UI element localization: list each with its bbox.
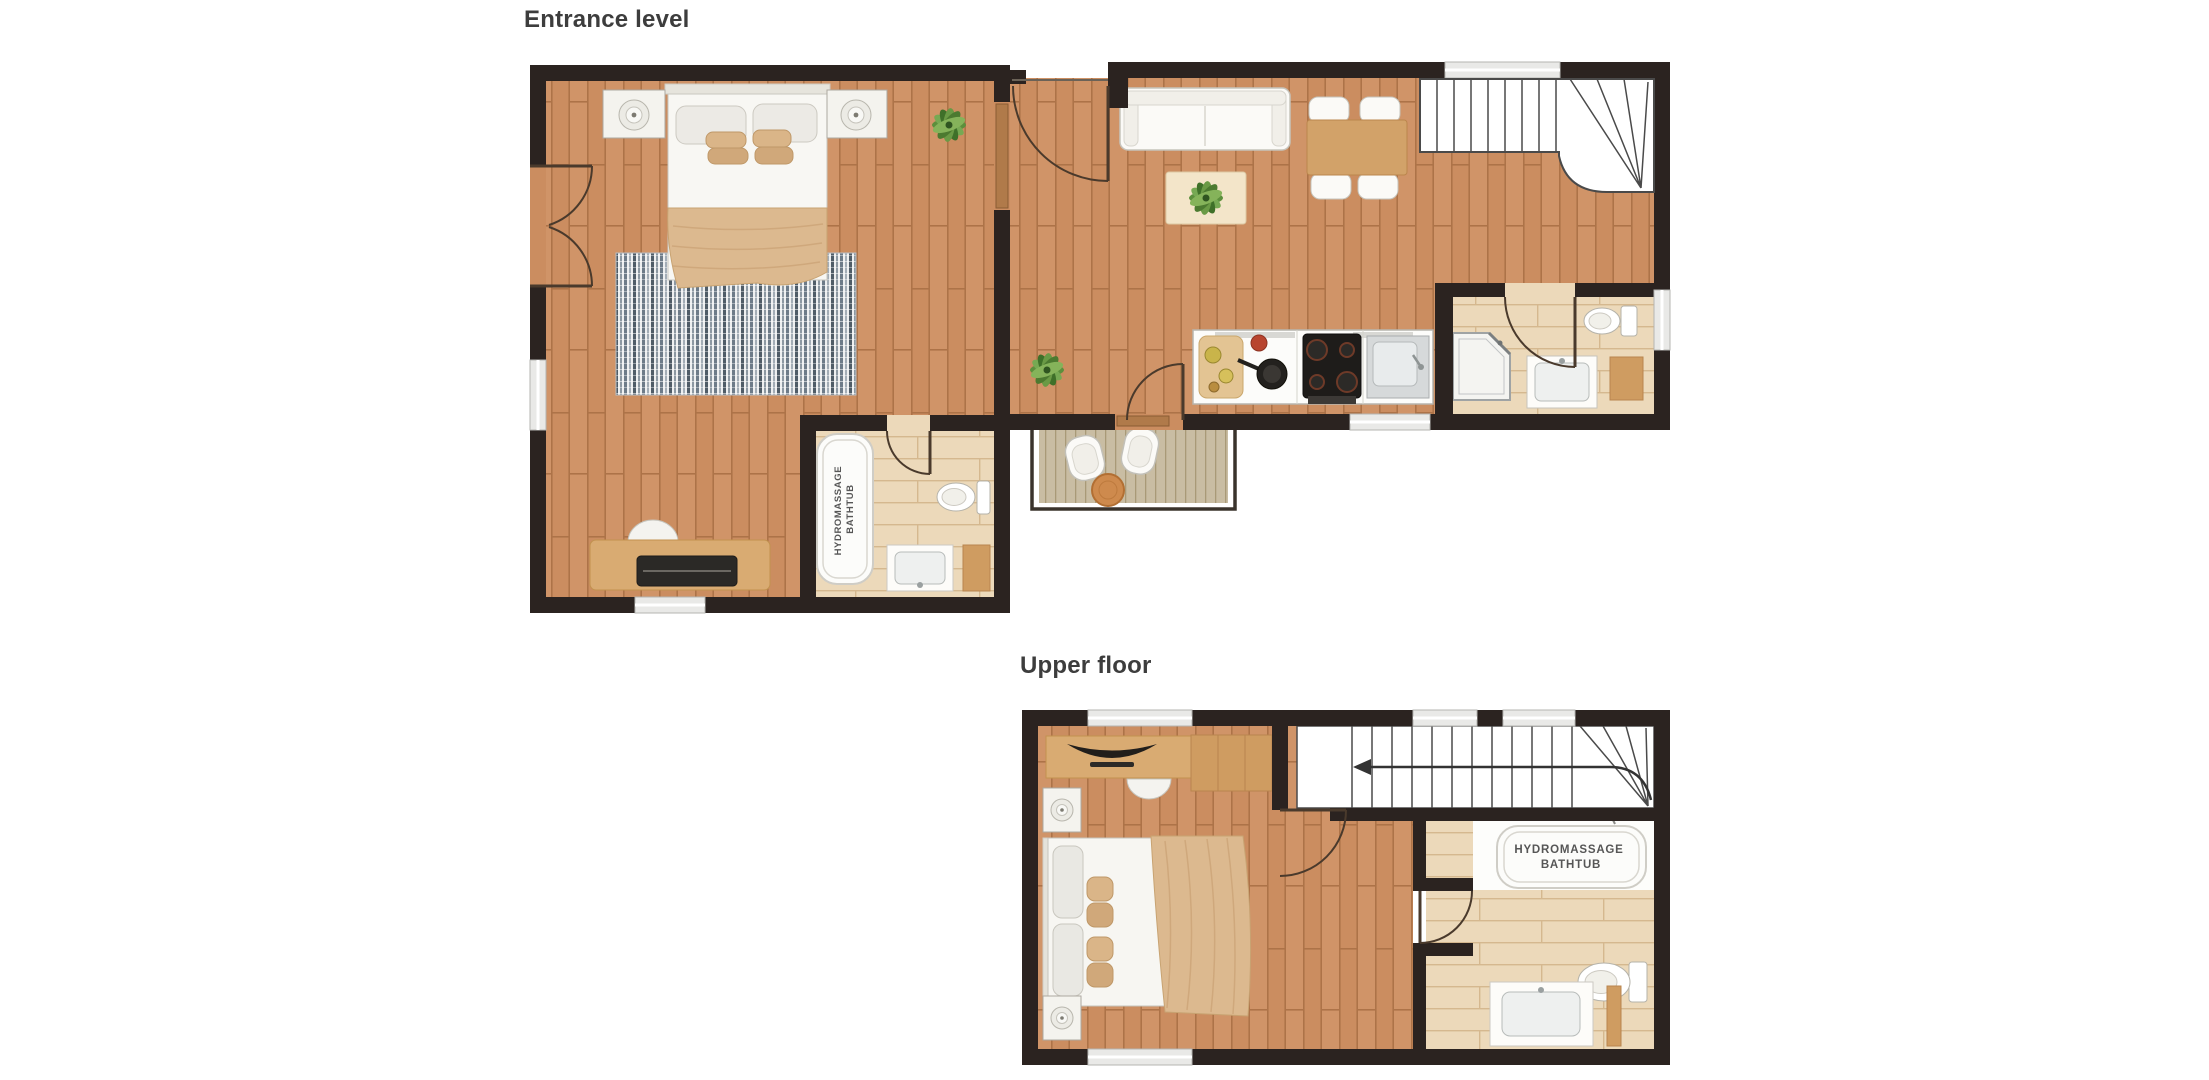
hydromassage-bathtub: HYDROMASSAGE BATHTUB bbox=[817, 434, 873, 584]
floorplan-page: Entrance level bbox=[0, 0, 2209, 1080]
window bbox=[1445, 62, 1560, 78]
red-jar-icon bbox=[1251, 335, 1267, 351]
balcony bbox=[1032, 423, 1235, 509]
window bbox=[530, 360, 546, 430]
blanket bbox=[1151, 836, 1251, 1016]
nightstand-right bbox=[827, 90, 887, 138]
dining-chair bbox=[1309, 97, 1349, 123]
double-bed bbox=[665, 84, 830, 288]
entrance-level-floorplan: HYDROMASSAGE BATHTUB bbox=[515, 40, 1675, 625]
pillow bbox=[1053, 924, 1083, 996]
entrance-level-title: Entrance level bbox=[524, 6, 690, 34]
window bbox=[1350, 414, 1430, 430]
washbasin bbox=[1527, 356, 1597, 408]
bathroom-cabinet bbox=[1610, 357, 1643, 400]
dining-chair bbox=[1311, 173, 1351, 199]
window bbox=[1503, 710, 1575, 726]
upper-floor-title: Upper floor bbox=[1020, 652, 1152, 680]
headboard bbox=[665, 84, 830, 94]
double-bed bbox=[1043, 836, 1251, 1016]
corner-shower bbox=[1453, 333, 1510, 400]
bedroom-door bbox=[994, 102, 1010, 210]
nightstand-left bbox=[603, 90, 665, 138]
kitchen-counter bbox=[1193, 330, 1433, 404]
washbasin-counter bbox=[1490, 982, 1593, 1046]
bathroom-cabinet bbox=[1607, 986, 1621, 1046]
nightstand-bottom bbox=[1043, 996, 1081, 1040]
window bbox=[1088, 710, 1192, 726]
dining-table bbox=[1307, 120, 1407, 175]
window bbox=[1654, 290, 1670, 350]
window bbox=[1088, 1049, 1192, 1065]
stove bbox=[1303, 334, 1361, 404]
toilet bbox=[1584, 306, 1637, 336]
balcony-side-table bbox=[1092, 474, 1124, 506]
washbasin bbox=[887, 545, 953, 591]
cutting-board bbox=[1199, 336, 1243, 398]
window bbox=[635, 597, 705, 613]
sofa bbox=[1120, 88, 1290, 150]
hydromassage-bathtub: HYDROMASSAGE BATHTUB bbox=[1497, 826, 1646, 888]
staircase bbox=[1297, 726, 1654, 808]
pillow bbox=[1053, 846, 1083, 918]
window bbox=[1413, 710, 1477, 726]
kitchen-sink bbox=[1367, 336, 1429, 398]
upper-floor-floorplan: HYDROMASSAGE BATHTUB bbox=[1015, 700, 1675, 1080]
dining-chair bbox=[1360, 97, 1400, 123]
coffee-table bbox=[1166, 172, 1246, 224]
dining-chair bbox=[1358, 173, 1398, 199]
wardrobe bbox=[1191, 735, 1272, 791]
bathroom-cabinet bbox=[963, 545, 990, 591]
nightstand-top bbox=[1043, 788, 1081, 832]
